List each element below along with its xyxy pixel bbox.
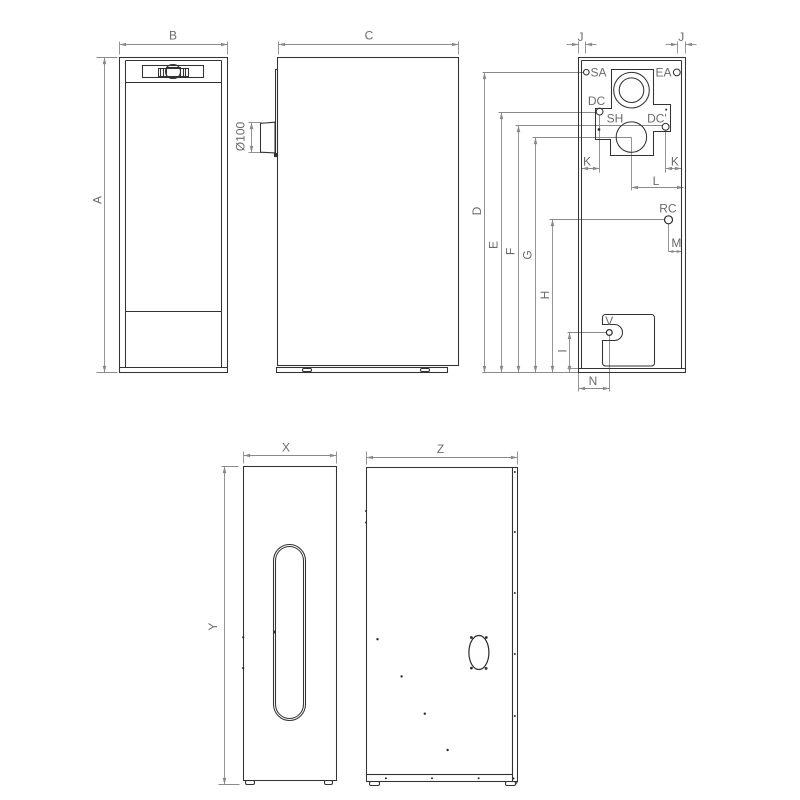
svg-text:EA: EA xyxy=(655,65,671,79)
svg-text:Ø100: Ø100 xyxy=(233,121,247,151)
svg-text:K: K xyxy=(671,155,679,169)
svg-text:V: V xyxy=(605,314,613,328)
svg-text:L: L xyxy=(653,174,660,188)
svg-text:Z: Z xyxy=(437,442,444,456)
svg-text:J: J xyxy=(578,30,584,44)
svg-text:M: M xyxy=(671,236,681,250)
svg-text:D: D xyxy=(470,206,484,215)
svg-text:SH: SH xyxy=(607,112,624,126)
svg-text:H: H xyxy=(538,291,552,300)
svg-text:SA: SA xyxy=(590,66,606,80)
svg-text:N: N xyxy=(589,374,598,388)
svg-text:C: C xyxy=(365,29,374,43)
svg-text:K: K xyxy=(583,155,591,169)
svg-text:A: A xyxy=(90,196,104,204)
svg-text:RC: RC xyxy=(659,202,677,216)
svg-text:F: F xyxy=(503,248,517,255)
svg-text:DC': DC' xyxy=(647,112,667,126)
svg-text:E: E xyxy=(487,241,501,249)
svg-text:Y: Y xyxy=(206,623,220,631)
svg-text:J: J xyxy=(678,30,684,44)
svg-text:G: G xyxy=(520,250,534,259)
svg-text:I: I xyxy=(555,349,569,352)
svg-text:B: B xyxy=(169,29,177,43)
svg-text:X: X xyxy=(282,441,290,455)
svg-text:DC: DC xyxy=(588,94,606,108)
